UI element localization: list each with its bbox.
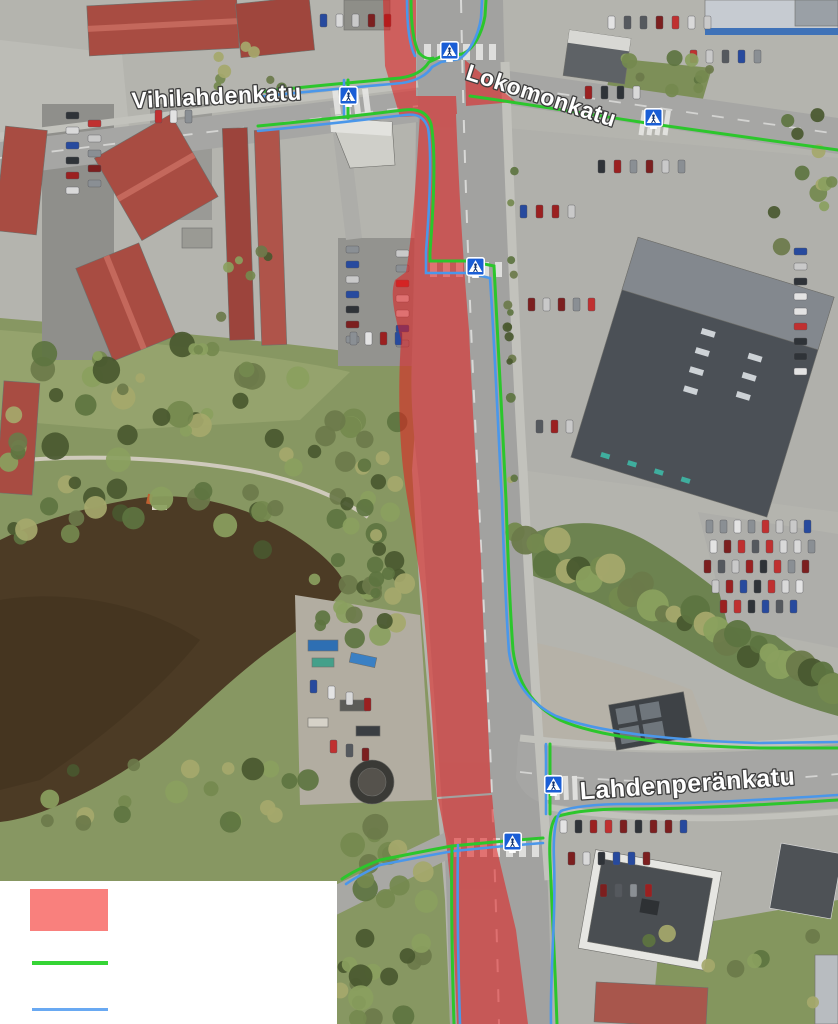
map-canvas: Vihilahdenkatu Lokomonkatu Lahdenperänka… <box>0 0 838 1024</box>
work-area-swatch <box>30 889 108 931</box>
crosswalk-sign-icon <box>441 42 458 62</box>
aerial-map: Vihilahdenkatu Lokomonkatu Lahdenperänka… <box>0 0 838 1024</box>
crosswalk-sign-icon <box>467 258 484 278</box>
crosswalk-sign-icon <box>545 776 562 796</box>
crosswalk-sign-icon <box>504 833 521 853</box>
map-legend: Work area Pedestrian Cycling <box>0 881 337 1024</box>
pedestrian-line-swatch <box>32 961 108 965</box>
crosswalk-sign-icon <box>340 87 357 107</box>
cycling-line-swatch <box>32 1008 108 1011</box>
crosswalk-sign-icon <box>645 109 662 129</box>
